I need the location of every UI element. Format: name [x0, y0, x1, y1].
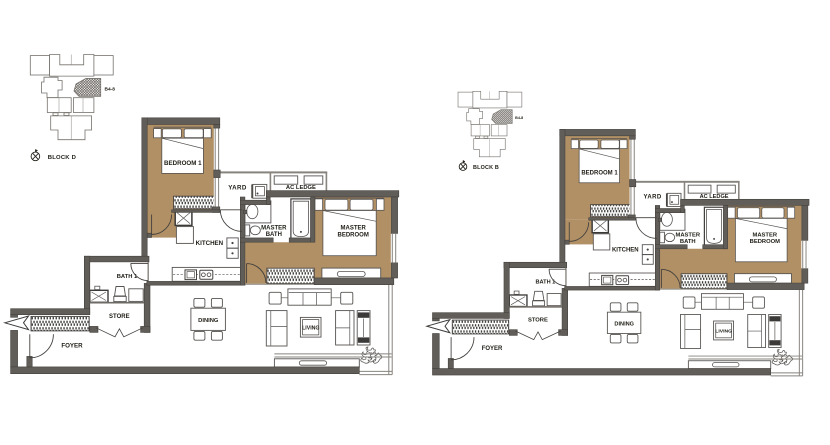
svg-text:BLOCK D: BLOCK D	[48, 155, 76, 161]
svg-text:BATH: BATH	[266, 232, 282, 238]
svg-text:BLOCK B: BLOCK B	[473, 165, 499, 171]
svg-text:YARD: YARD	[228, 185, 247, 192]
svg-text:FOYER: FOYER	[61, 343, 83, 350]
svg-text:MASTER: MASTER	[261, 225, 287, 231]
svg-text:B4-8: B4-8	[105, 87, 116, 93]
svg-text:BEDROOM 1: BEDROOM 1	[164, 160, 202, 167]
svg-text:BEDROOM: BEDROOM	[338, 232, 369, 238]
svg-text:KITCHEN: KITCHEN	[196, 240, 224, 247]
svg-text:DINING: DINING	[198, 318, 219, 324]
svg-text:STORE: STORE	[109, 314, 130, 320]
svg-text:MASTER: MASTER	[341, 226, 367, 232]
svg-text:LIVING: LIVING	[302, 325, 319, 331]
